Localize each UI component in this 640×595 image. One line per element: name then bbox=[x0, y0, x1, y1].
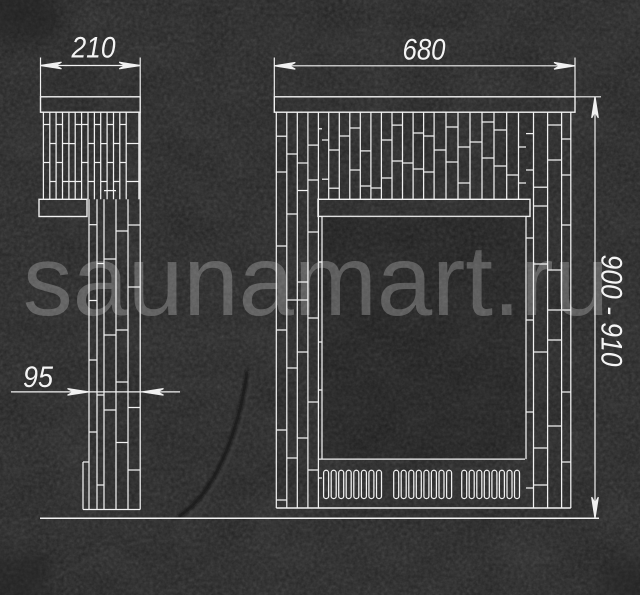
svg-text:210: 210 bbox=[71, 32, 116, 65]
svg-text:95: 95 bbox=[23, 361, 54, 394]
svg-text:saunamart.ru: saunamart.ru bbox=[23, 225, 609, 337]
svg-text:680: 680 bbox=[403, 34, 447, 67]
